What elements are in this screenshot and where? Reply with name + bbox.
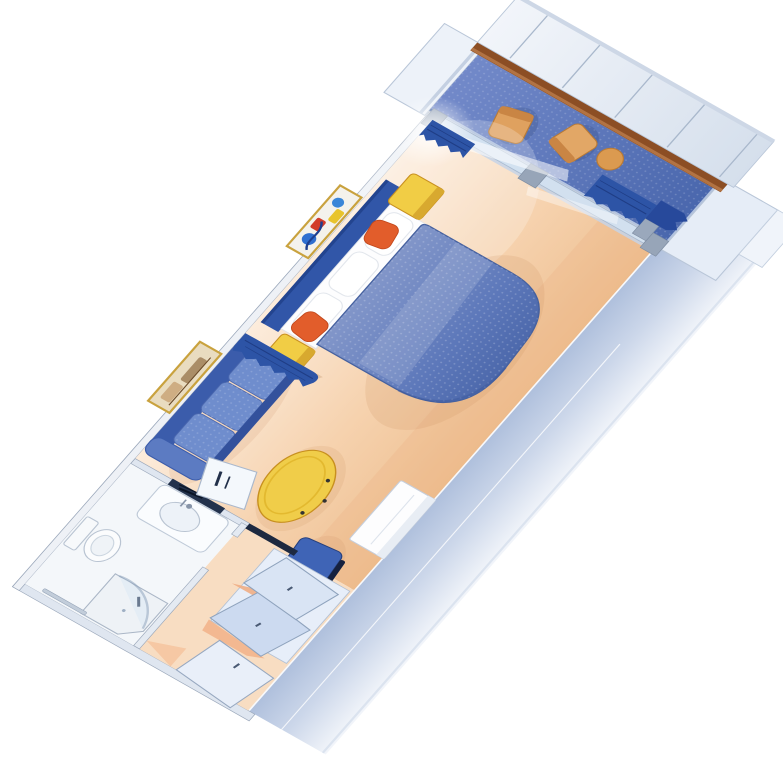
- stateroom-floorplan: Cruise ship balcony stateroom — isometri…: [0, 0, 783, 768]
- stateroom-floorplan-canvas: Cruise ship balcony stateroom — isometri…: [0, 0, 783, 768]
